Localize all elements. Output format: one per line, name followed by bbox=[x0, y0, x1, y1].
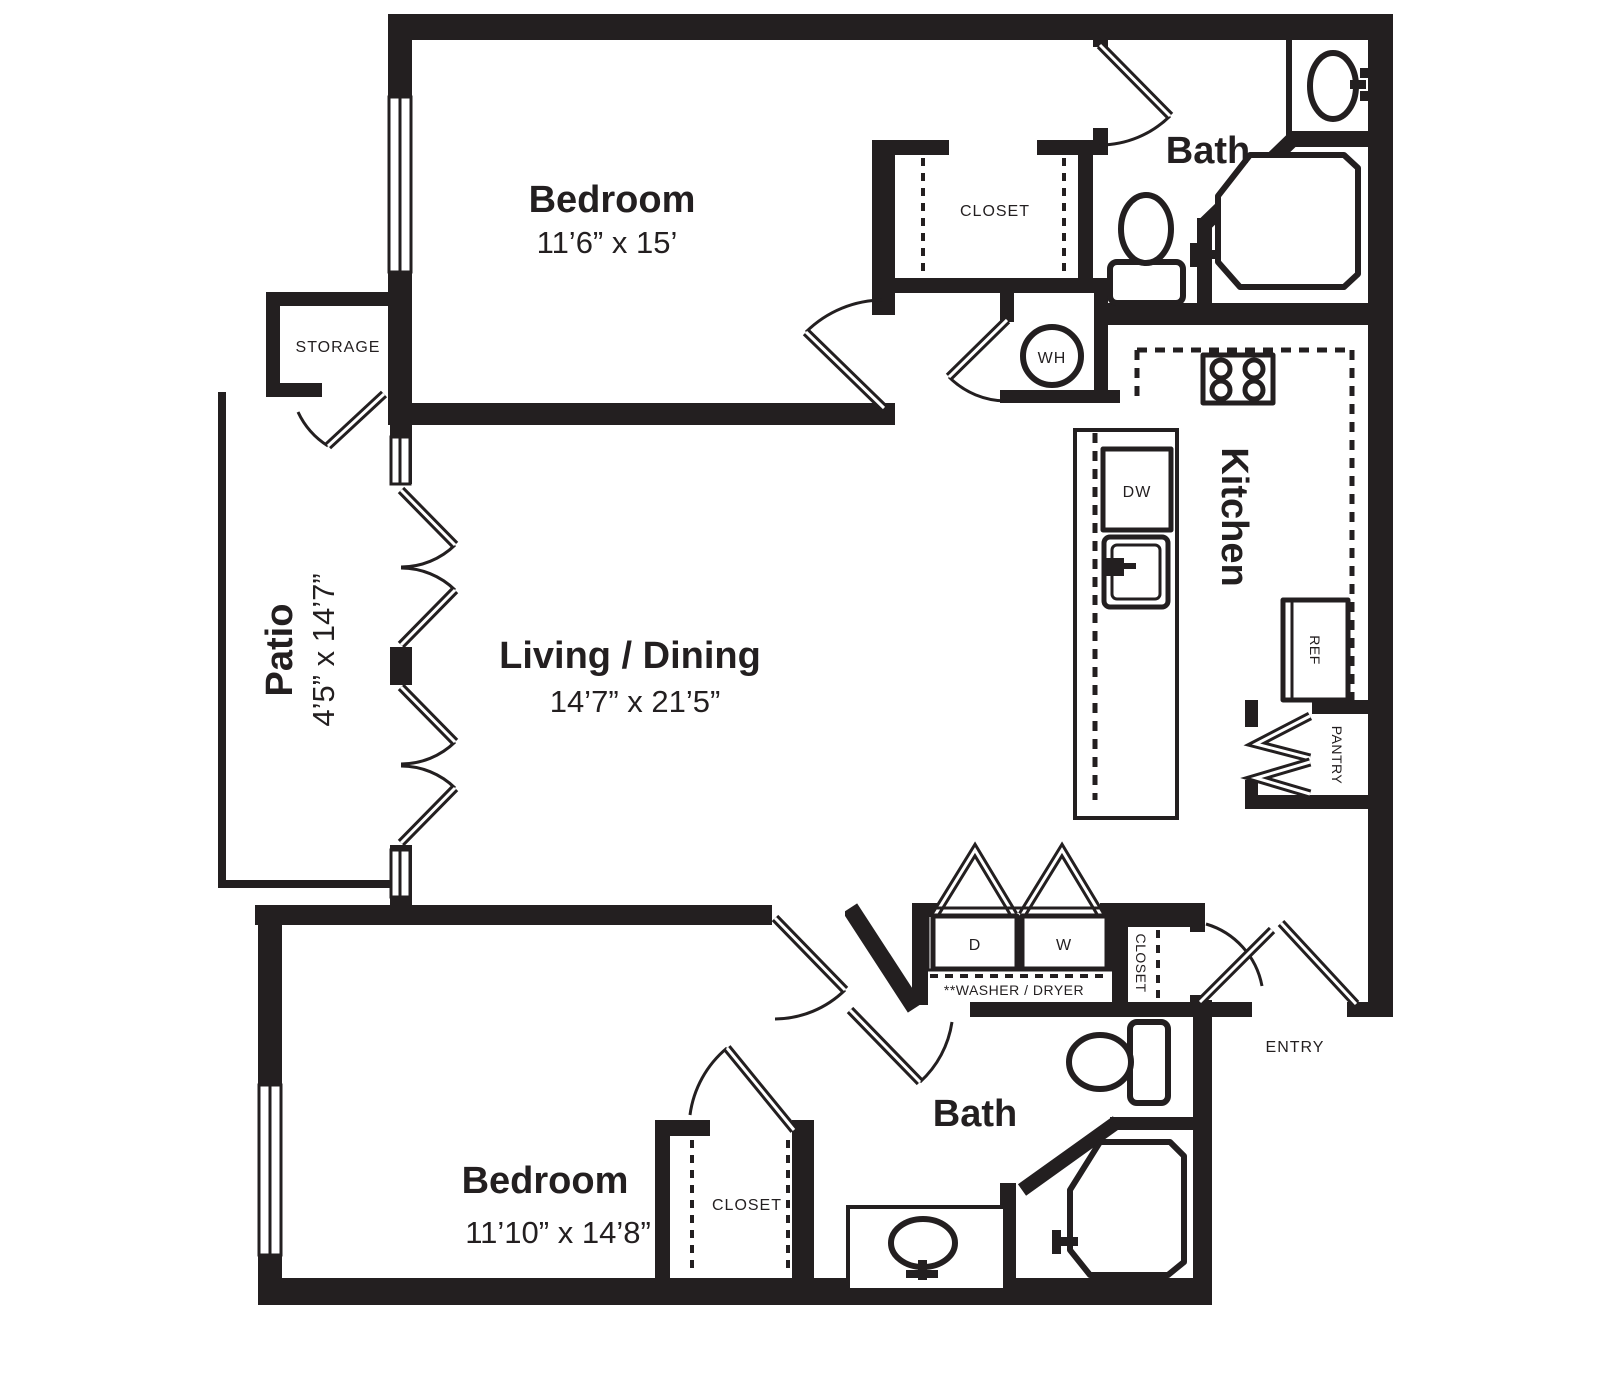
bath1-toilet bbox=[1110, 195, 1183, 303]
bath2-label: Bath bbox=[933, 1093, 1017, 1135]
storage-door bbox=[298, 394, 384, 446]
bedroom2-door bbox=[775, 918, 845, 1019]
bath2-sink bbox=[848, 1207, 1005, 1290]
storage-label: STORAGE bbox=[296, 339, 381, 356]
bath1-door bbox=[1100, 45, 1170, 145]
bedroom1-dims: 11’6” x 15’ bbox=[537, 225, 678, 260]
bath2-toilet bbox=[1069, 1022, 1168, 1103]
fixtures bbox=[692, 53, 1370, 1290]
living-window-upper bbox=[391, 437, 410, 484]
dryer-label: D bbox=[969, 937, 982, 954]
doors bbox=[298, 45, 1356, 1130]
water-heater-door bbox=[949, 320, 1007, 401]
washer-dryer bbox=[928, 908, 1111, 976]
closet2-label: CLOSET bbox=[712, 1197, 782, 1214]
washer-dryer-note: **WASHER / DRYER bbox=[944, 982, 1084, 998]
bath1-tub bbox=[1190, 155, 1358, 287]
living-window-lower bbox=[391, 850, 410, 897]
bath1-sink bbox=[1310, 53, 1370, 119]
kitchen-label: Kitchen bbox=[1213, 447, 1255, 586]
living-label: Living / Dining bbox=[499, 635, 761, 677]
patio-dims: 4’5” x 14’7” bbox=[306, 573, 341, 726]
closet2-door bbox=[690, 1048, 794, 1130]
entry-door bbox=[1281, 923, 1356, 1004]
pantry-bifold-doors bbox=[1256, 716, 1310, 794]
closet1-label: CLOSET bbox=[960, 203, 1030, 220]
refrigerator-label: REF bbox=[1307, 635, 1323, 665]
floor-plan-page: Bedroom 11’6” x 15’ CLOSET Bath STORAGE … bbox=[0, 0, 1622, 1377]
bedroom2-dims: 11’10” x 14’8” bbox=[465, 1215, 651, 1250]
dishwasher-label: DW bbox=[1123, 484, 1152, 501]
water-heater-label: WH bbox=[1038, 350, 1067, 367]
entry-closet-door bbox=[1200, 924, 1272, 1002]
living-dims: 14’7” x 21’5” bbox=[550, 684, 721, 719]
bath1-label: Bath bbox=[1166, 130, 1250, 172]
washer-dryer-bifold-doors bbox=[935, 850, 1101, 915]
bedroom1-label: Bedroom bbox=[529, 179, 696, 221]
bath2-door bbox=[850, 1010, 952, 1082]
floor-plan-drawing: Bedroom 11’6” x 15’ CLOSET Bath STORAGE … bbox=[0, 0, 1622, 1377]
washer-label: W bbox=[1056, 937, 1072, 954]
kitchen-sink bbox=[1104, 537, 1168, 607]
patio-label: Patio bbox=[259, 604, 301, 697]
pantry-label: PANTRY bbox=[1329, 726, 1345, 785]
stove bbox=[1203, 355, 1273, 403]
entry-label: ENTRY bbox=[1266, 1039, 1325, 1056]
entry-closet-label: CLOSET bbox=[1133, 933, 1149, 992]
bedroom2-window bbox=[259, 1085, 281, 1255]
bedroom2-label: Bedroom bbox=[462, 1160, 629, 1202]
bedroom1-window bbox=[389, 97, 411, 272]
